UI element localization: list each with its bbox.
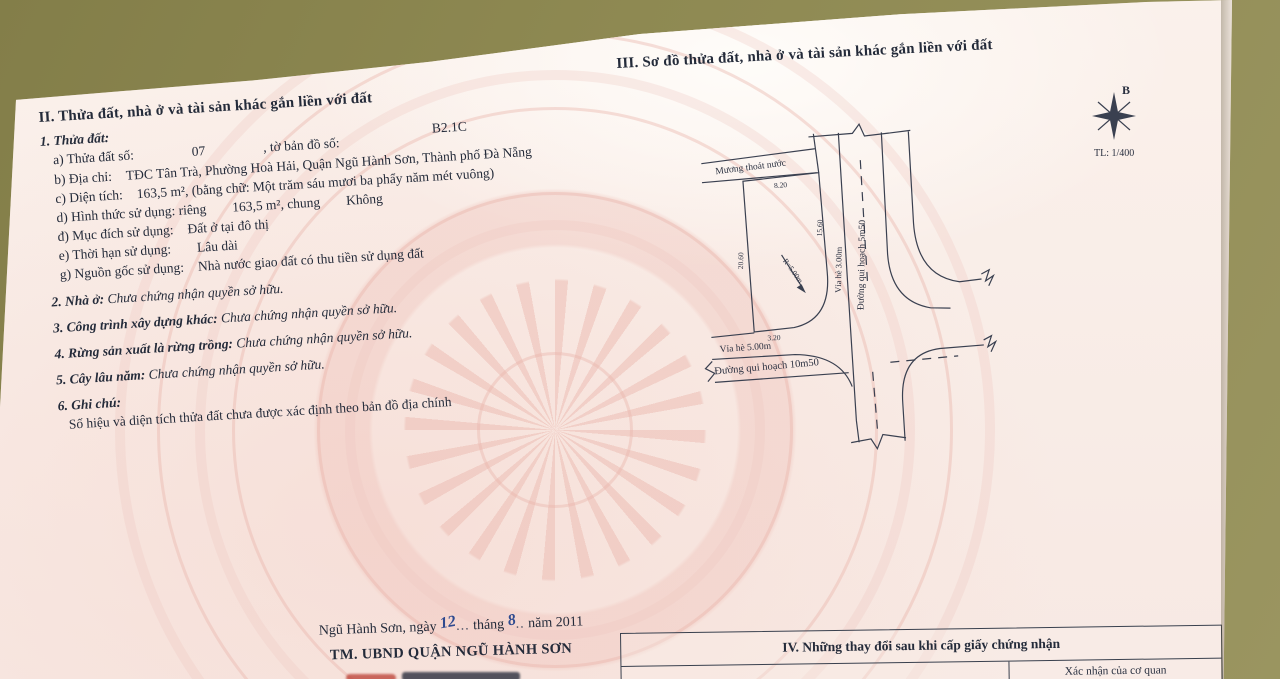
forest-value: Chưa chứng nhận quyền sở hữu.	[236, 325, 413, 350]
dim-top: 8.20	[774, 180, 788, 190]
use-origin-label: g) Nguồn gốc sử dụng:	[59, 260, 184, 282]
signature-fragment	[402, 672, 520, 679]
sidewalk-right-label: Vỉa hè 3.00m	[833, 246, 844, 293]
perennial-value: Chưa chứng nhận quyền sở hữu.	[148, 356, 325, 381]
parcel-outline	[743, 172, 830, 332]
parcel-diagram: Mương thoát nước 8.20 20.60 15.60 3.20 R…	[692, 115, 1030, 503]
road-right-break-bottom	[984, 336, 997, 352]
parcel-number-value: 07	[191, 144, 205, 160]
sidewalk-bottom-top-line	[711, 333, 754, 337]
date-prefix: Ngũ Hành Sơn, ngày	[319, 620, 437, 639]
paper-edge-shadow	[1221, 0, 1236, 679]
dim-right: 15.60	[815, 219, 825, 236]
house-label: 2. Nhà ở:	[51, 291, 104, 309]
dim-left: 20.60	[736, 252, 745, 269]
use-term-value: Lâu dài	[197, 238, 239, 255]
handwritten-month: 8	[506, 611, 517, 630]
drain-label: Mương thoát nước	[715, 159, 787, 178]
map-sheet-value: B2.1C	[431, 117, 467, 138]
road-right-break-top	[981, 270, 994, 286]
construction-label: 3. Công trình xây dựng khác:	[53, 310, 218, 335]
scale-label: TL: 1/400	[1094, 148, 1134, 159]
road-right-inner-curve	[881, 130, 950, 310]
road-top-break	[808, 122, 910, 138]
section-2-block: II. Thửa đất, nhà ở và tài sản khác gắn …	[38, 76, 604, 435]
road-right-label: Đường qui hoạch 5m50	[857, 220, 869, 311]
sidewalk-line-ext	[813, 134, 818, 173]
parcel-number-label: a) Thửa đất số:	[53, 148, 135, 168]
handwritten-day: 12	[439, 613, 458, 634]
road-bottom-label: Đường qui hoạch 10m50	[714, 357, 819, 377]
date-mid: tháng	[473, 617, 505, 633]
area-label: c) Diện tích:	[55, 187, 123, 206]
radius-label: R=5.00m	[781, 257, 805, 285]
map-sheet-label: , tờ bản đồ số:	[263, 136, 340, 156]
construction-value: Chưa chứng nhận quyền sở hữu.	[221, 300, 398, 325]
lower-road-bottom-break	[851, 434, 906, 450]
address-label: b) Địa chỉ:	[54, 168, 113, 186]
road-centerline-lower	[873, 372, 878, 435]
section-4-table: IV. Những thay đổi sau khi cấp giấy chứn…	[620, 625, 1223, 679]
area-value: 163,5 m²	[136, 183, 185, 201]
road-right-outer-curve	[908, 129, 981, 283]
road-bottom-centerline	[890, 356, 958, 362]
lower-road-right-curve	[901, 345, 987, 441]
compass-north-label: B	[1122, 83, 1130, 97]
perennial-label: 5. Cây lâu năm:	[56, 367, 146, 387]
north-star-icon	[1092, 92, 1136, 140]
confirmation-cell: Xác nhận của cơ quan	[1009, 659, 1222, 679]
notes-label: 6. Ghi chú:	[57, 395, 121, 414]
red-stamp-fragment	[346, 674, 396, 679]
radius-arrowhead	[797, 284, 806, 293]
compass-rose: B TL: 1/400	[1080, 80, 1156, 169]
sidewalk-bottom-label: Vỉa hè 5.00m	[719, 342, 772, 356]
use-form-shared-value: Không	[346, 191, 384, 208]
date-suffix: năm 2011	[528, 614, 584, 631]
forest-label: 4. Rừng sản xuất là rừng trồng:	[54, 336, 233, 362]
certificate-paper: II. Thửa đất, nhà ở và tài sản khác gắn …	[0, 0, 1280, 679]
house-value: Chưa chứng nhận quyền sở hữu.	[107, 280, 284, 305]
